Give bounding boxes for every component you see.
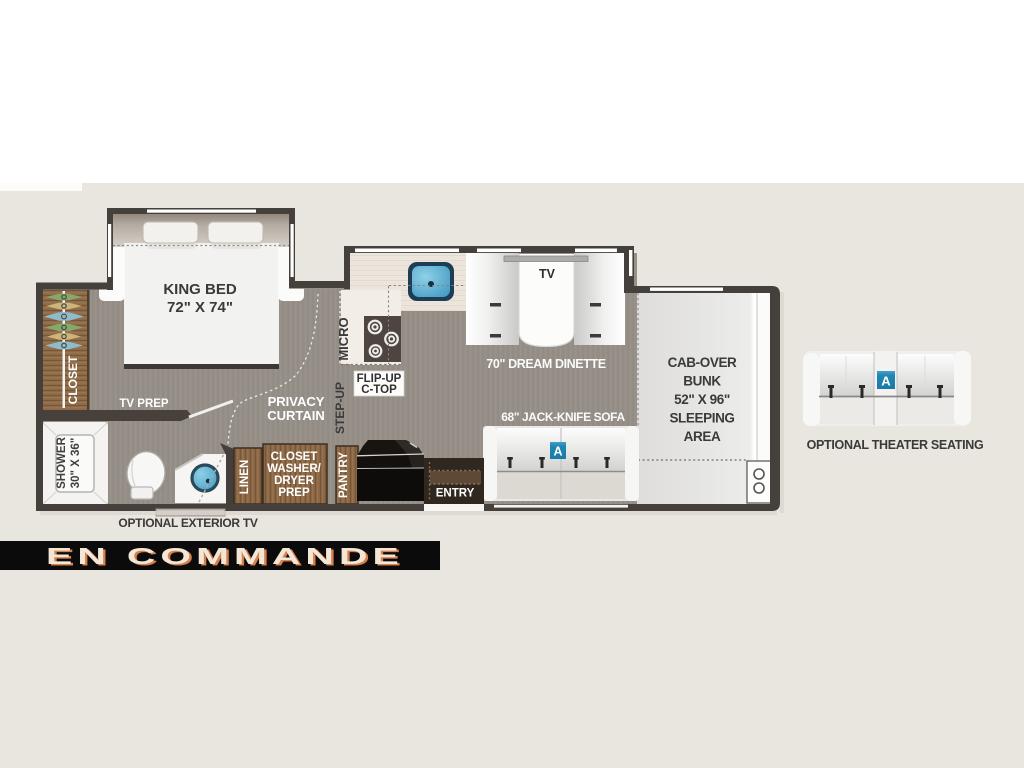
svg-text:BUNK: BUNK: [683, 374, 721, 389]
svg-text:CLOSET: CLOSET: [66, 355, 80, 404]
svg-text:SLEEPING: SLEEPING: [669, 411, 734, 426]
svg-text:A: A: [881, 374, 891, 389]
svg-text:30" X 36": 30" X 36": [70, 438, 82, 489]
svg-text:TV: TV: [539, 267, 556, 281]
svg-text:72" X 74": 72" X 74": [167, 299, 233, 316]
svg-text:68" JACK-KNIFE SOFA: 68" JACK-KNIFE SOFA: [501, 410, 625, 424]
svg-text:SHOWER: SHOWER: [56, 436, 68, 488]
svg-text:52" X 96": 52" X 96": [674, 392, 730, 407]
svg-text:TV PREP: TV PREP: [119, 398, 169, 410]
svg-text:CURTAIN: CURTAIN: [267, 408, 325, 423]
svg-text:LINEN: LINEN: [239, 460, 251, 495]
svg-text:AREA: AREA: [684, 429, 721, 444]
svg-text:PRIVACY: PRIVACY: [268, 394, 325, 409]
svg-text:EN COMMANDE: EN COMMANDE: [46, 543, 404, 569]
svg-text:CAB-OVER: CAB-OVER: [668, 355, 737, 370]
svg-text:A: A: [553, 445, 562, 459]
svg-text:C-TOP: C-TOP: [361, 384, 397, 396]
svg-text:DRYER: DRYER: [274, 475, 315, 487]
svg-text:OPTIONAL EXTERIOR TV: OPTIONAL EXTERIOR TV: [118, 516, 257, 530]
svg-text:STEP-UP: STEP-UP: [333, 382, 347, 434]
svg-text:PANTRY: PANTRY: [338, 452, 350, 498]
svg-text:OPTIONAL THEATER SEATING: OPTIONAL THEATER SEATING: [807, 438, 984, 452]
svg-text:70" DREAM DINETTE: 70" DREAM DINETTE: [486, 357, 605, 371]
svg-text:CLOSET: CLOSET: [271, 451, 318, 463]
svg-text:KING BED: KING BED: [163, 281, 237, 298]
svg-text:WASHER/: WASHER/: [267, 463, 321, 475]
svg-text:ENTRY: ENTRY: [436, 488, 475, 500]
svg-text:MICRO: MICRO: [336, 317, 351, 360]
svg-text:PREP: PREP: [278, 487, 310, 499]
